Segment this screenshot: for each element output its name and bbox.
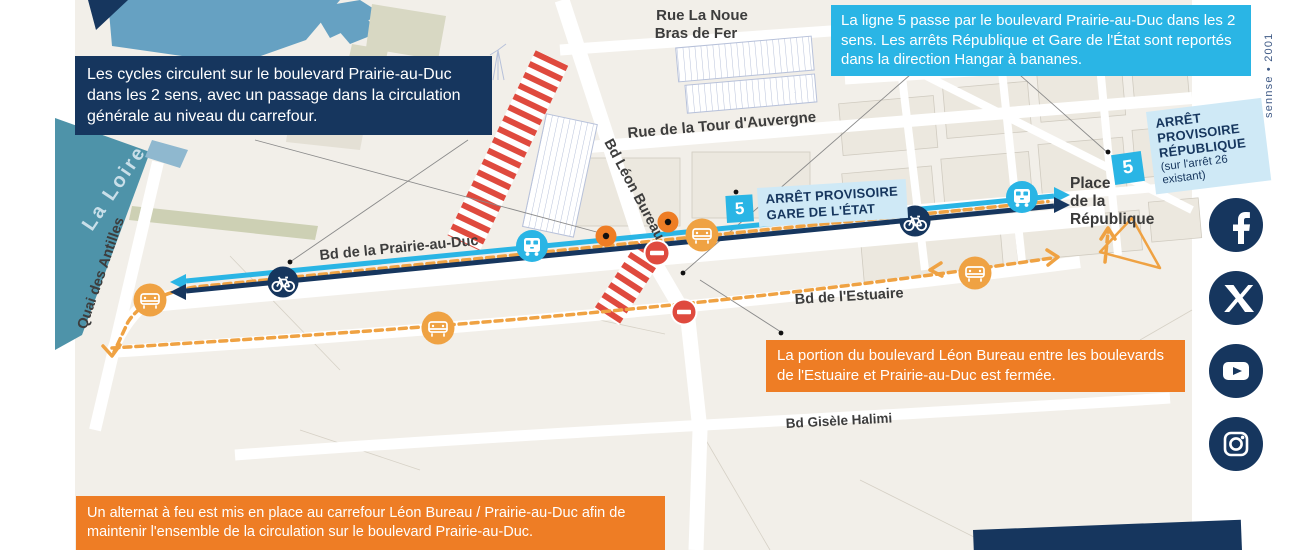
facebook-icon[interactable]	[1209, 198, 1263, 252]
place-republique-label2: de la	[1070, 193, 1106, 210]
social-links	[1209, 198, 1263, 490]
car-icon	[959, 257, 992, 290]
bus-icon	[516, 230, 548, 262]
car-icon	[134, 284, 167, 317]
line5-badge-republique: 5	[1111, 151, 1145, 185]
car-icon	[686, 219, 719, 252]
street-label-rue-la-noue: Rue La Noue	[656, 7, 748, 24]
place-republique-label3: République	[1070, 211, 1155, 228]
no-entry-icon	[645, 241, 670, 266]
callout-alternat-feu: Un alternat à feu est mis en place au ca…	[76, 496, 665, 550]
place-republique-label: Place	[1070, 175, 1111, 192]
callout-leon-bureau-closed: La portion du boulevard Léon Bureau entr…	[766, 340, 1185, 392]
stop-label-republique: ARRÊT PROVISOIRE RÉPUBLIQUE (sur l'arrêt…	[1146, 98, 1271, 195]
x-icon[interactable]	[1209, 271, 1263, 325]
traffic-light-icon	[596, 226, 617, 247]
bus-icon	[1006, 181, 1038, 213]
street-label-rue-la-noue2: Bras de Fer	[655, 25, 738, 42]
bike-icon	[268, 267, 299, 298]
credit-text: sennse • 2001	[1263, 32, 1275, 118]
car-icon	[422, 312, 455, 345]
instagram-icon[interactable]	[1209, 417, 1263, 471]
line5-badge: 5	[725, 194, 754, 223]
youtube-icon[interactable]	[1209, 344, 1263, 398]
no-entry-icon	[672, 300, 697, 325]
callout-line5: La ligne 5 passe par le boulevard Prairi…	[831, 5, 1251, 76]
traffic-infographic: Rue La Noue Bras de Fer Rue de la Tour d…	[0, 0, 1295, 550]
callout-cycles: Les cycles circulent sur le boulevard Pr…	[75, 56, 492, 135]
